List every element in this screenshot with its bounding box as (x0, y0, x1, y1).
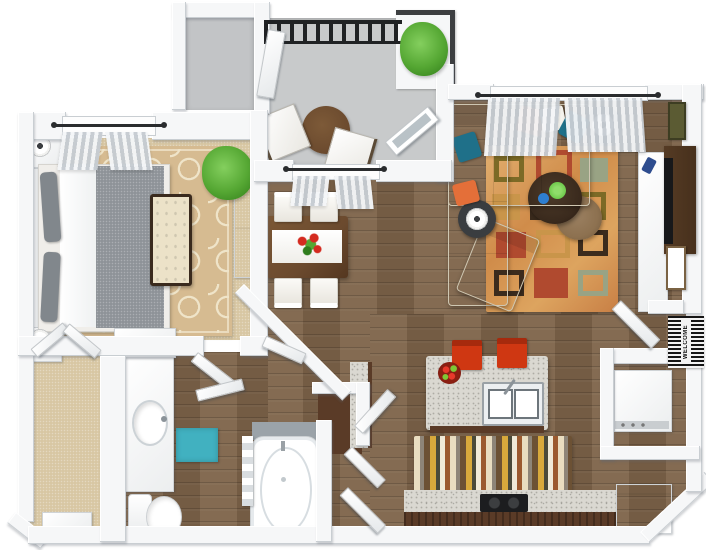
bedroom-curtain (105, 132, 152, 170)
storage-closet-floor (186, 14, 254, 110)
bedroom-curtain (57, 132, 102, 170)
vanity-sink (132, 400, 168, 446)
tv-screen (664, 158, 673, 244)
sink-basin (514, 389, 539, 419)
dining-curtain (290, 176, 329, 206)
closet-carpet (30, 354, 102, 530)
fruit-bowl-icon (438, 362, 461, 384)
wall-utility-divider (600, 446, 700, 460)
blue-plate (538, 193, 549, 204)
wall-frame (668, 102, 686, 140)
tub-faucet-icon (281, 441, 285, 451)
wall-entry-stub (648, 300, 684, 314)
tub-drain (281, 477, 286, 482)
wall-balcony-dining-right (376, 160, 452, 182)
dining-chair (310, 278, 338, 308)
double-sink (482, 382, 544, 426)
wall-utility-left (600, 348, 614, 460)
rug-square (578, 270, 608, 296)
balcony-plant-icon (400, 22, 448, 76)
dining-chair (274, 278, 302, 308)
living-curtain (484, 98, 560, 156)
wall-frame (666, 246, 686, 290)
dining-curtain-rod (286, 168, 384, 171)
bar-stool (497, 338, 527, 368)
wall-exterior-right-lower (686, 352, 702, 492)
faucet-icon (161, 416, 167, 422)
teal-bath-mat (176, 428, 218, 462)
green-plate (549, 182, 566, 199)
doormat-text: WELCOME (683, 325, 689, 359)
bathtub-basin (260, 447, 312, 533)
bedroom-curtain-rod (54, 124, 164, 127)
sink-basin (488, 389, 513, 419)
wall-storage-left (172, 2, 186, 110)
floor-plan: WELCOME (0, 0, 706, 550)
bed-sheet-fold (60, 167, 98, 327)
flower-centerpiece-icon (292, 230, 326, 262)
wall-closet-east (100, 356, 126, 542)
welcome-doormat: WELCOME (668, 316, 704, 368)
rug-square (534, 268, 568, 298)
living-curtain-rod (478, 94, 658, 97)
kitchen-striped-runner (414, 436, 572, 496)
washer (614, 370, 672, 432)
bedroom-bench (150, 194, 192, 286)
living-curtain (564, 98, 646, 152)
washer-control-panel (615, 421, 669, 429)
drum-lamp-icon (464, 206, 490, 232)
wall-tub-east (316, 420, 332, 542)
shower-curtain (242, 436, 253, 506)
wall-exterior-left (18, 112, 34, 522)
cooktop (480, 494, 528, 512)
wall-bedroom-top-right (152, 112, 258, 140)
dining-curtain (334, 176, 373, 209)
island-base (430, 426, 544, 433)
bedroom-plant-icon (202, 146, 254, 200)
